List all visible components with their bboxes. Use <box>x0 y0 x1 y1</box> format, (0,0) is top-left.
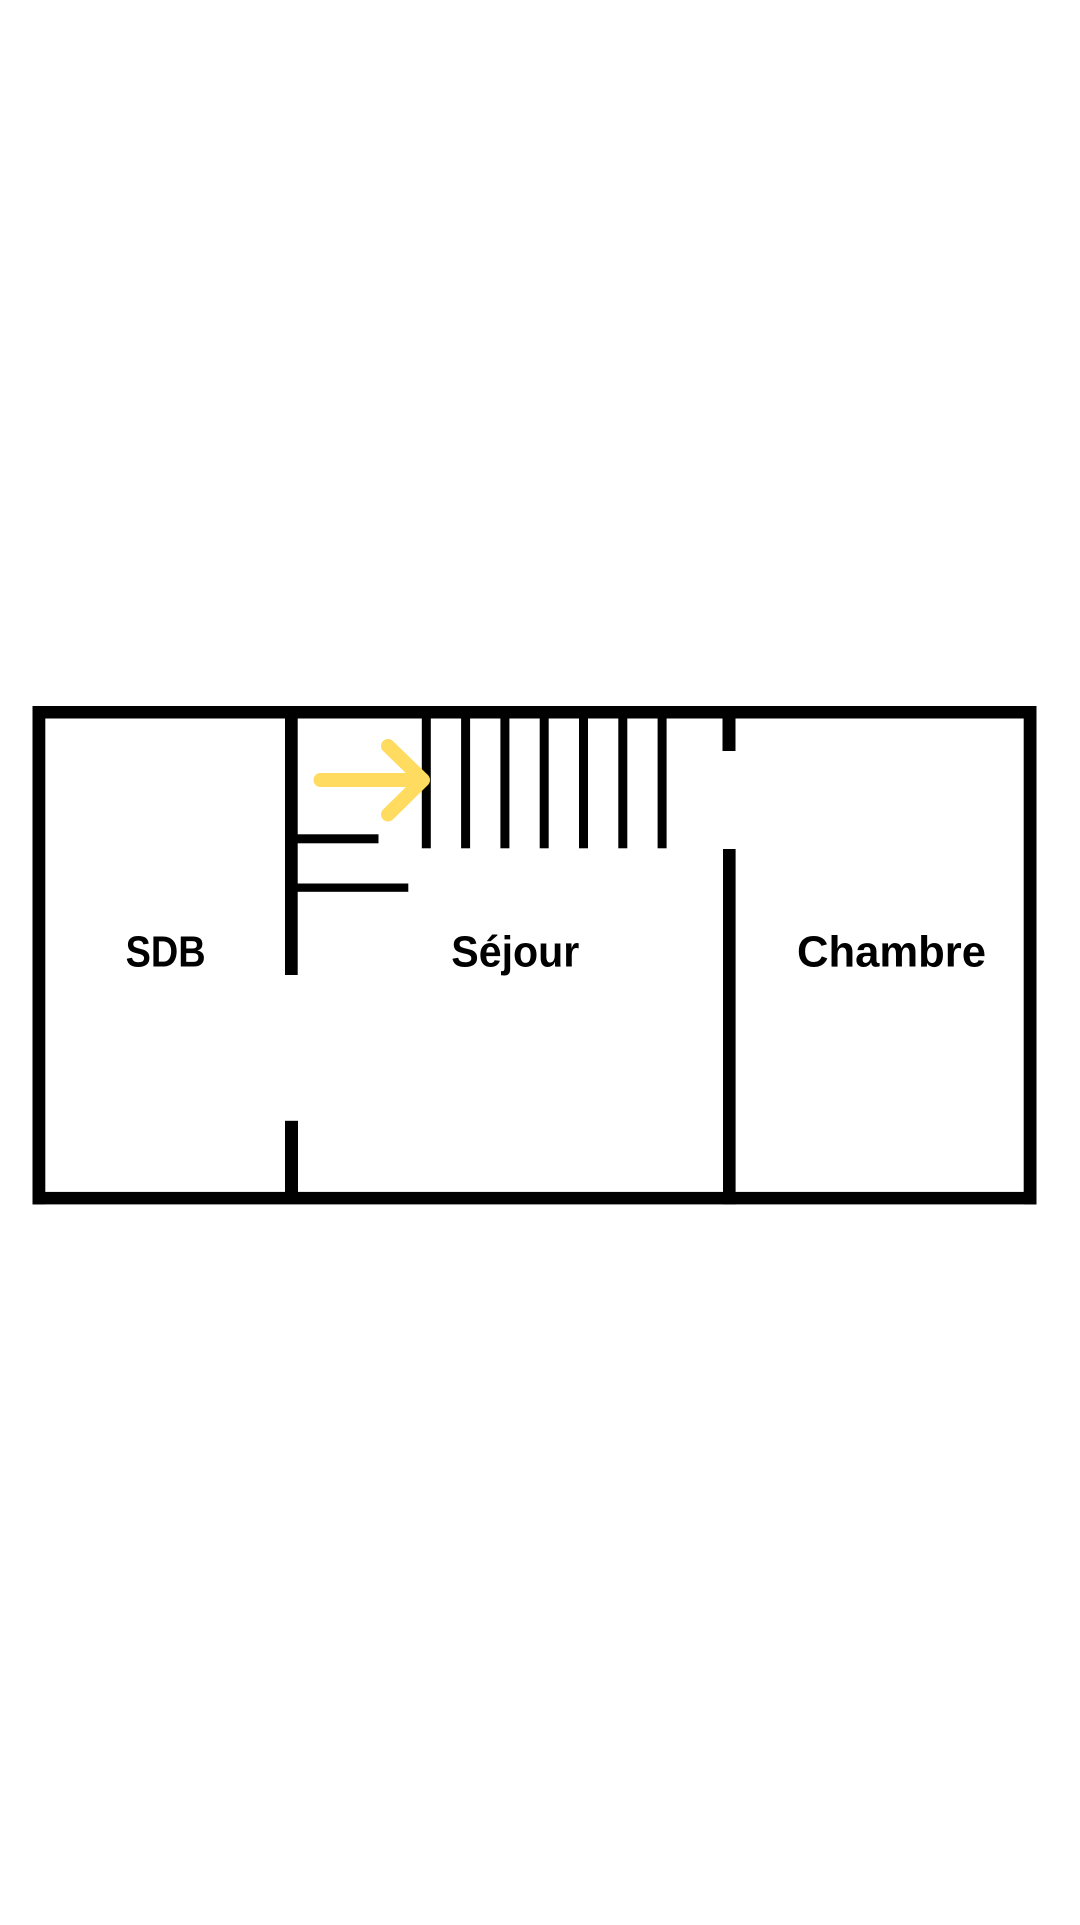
svg-text:SDB: SDB <box>126 928 206 977</box>
svg-text:Séjour: Séjour <box>451 928 579 977</box>
svg-text:Chambre: Chambre <box>797 928 986 977</box>
